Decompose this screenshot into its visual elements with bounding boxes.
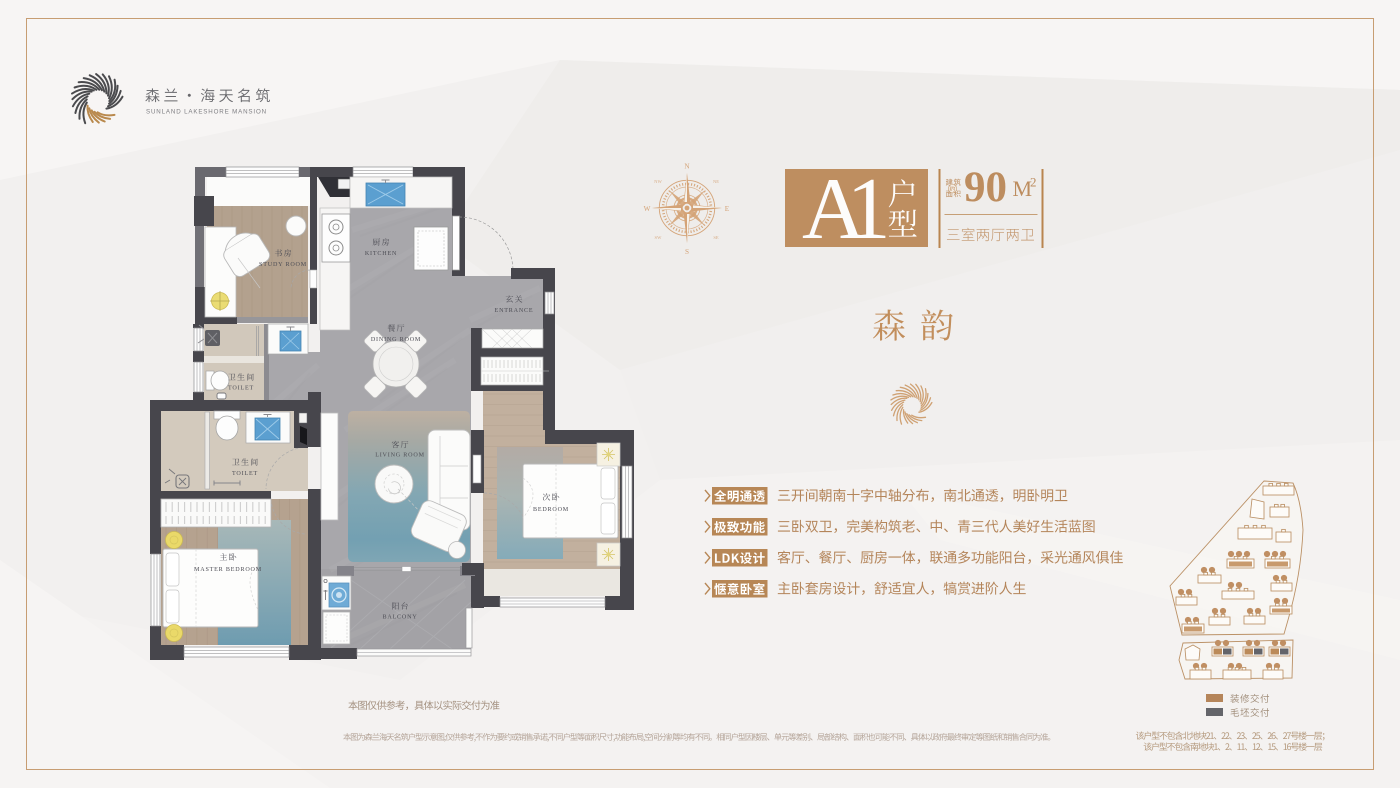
svg-text:LIVING ROOM: LIVING ROOM bbox=[375, 453, 425, 459]
svg-text:SE: SE bbox=[713, 235, 719, 240]
svg-text:W: W bbox=[644, 205, 651, 213]
svg-text:MASTER BEDROOM: MASTER BEDROOM bbox=[194, 567, 262, 573]
svg-text:TOILET: TOILET bbox=[228, 386, 254, 392]
svg-text:BALCONY: BALCONY bbox=[382, 615, 417, 621]
svg-text:STUDY ROOM: STUDY ROOM bbox=[259, 262, 307, 268]
svg-text:S: S bbox=[685, 248, 689, 256]
svg-text:NW: NW bbox=[654, 179, 662, 184]
svg-text:A1: A1 bbox=[802, 161, 891, 258]
svg-text:SUNLAND LAKESHORE MANSION: SUNLAND LAKESHORE MANSION bbox=[146, 109, 267, 116]
svg-text:E: E bbox=[725, 205, 730, 213]
svg-text:SW: SW bbox=[655, 235, 663, 240]
svg-text:90: 90 bbox=[964, 164, 1007, 211]
svg-text:NE: NE bbox=[713, 179, 719, 184]
svg-text:DINING ROOM: DINING ROOM bbox=[371, 337, 421, 343]
svg-text:TOILET: TOILET bbox=[232, 471, 258, 477]
svg-text:2: 2 bbox=[1030, 175, 1037, 190]
svg-text:N: N bbox=[684, 163, 690, 171]
svg-text:KITCHEN: KITCHEN bbox=[365, 251, 397, 257]
svg-text:BEDROOM: BEDROOM bbox=[533, 507, 569, 513]
svg-text:ENTRANCE: ENTRANCE bbox=[495, 308, 534, 314]
